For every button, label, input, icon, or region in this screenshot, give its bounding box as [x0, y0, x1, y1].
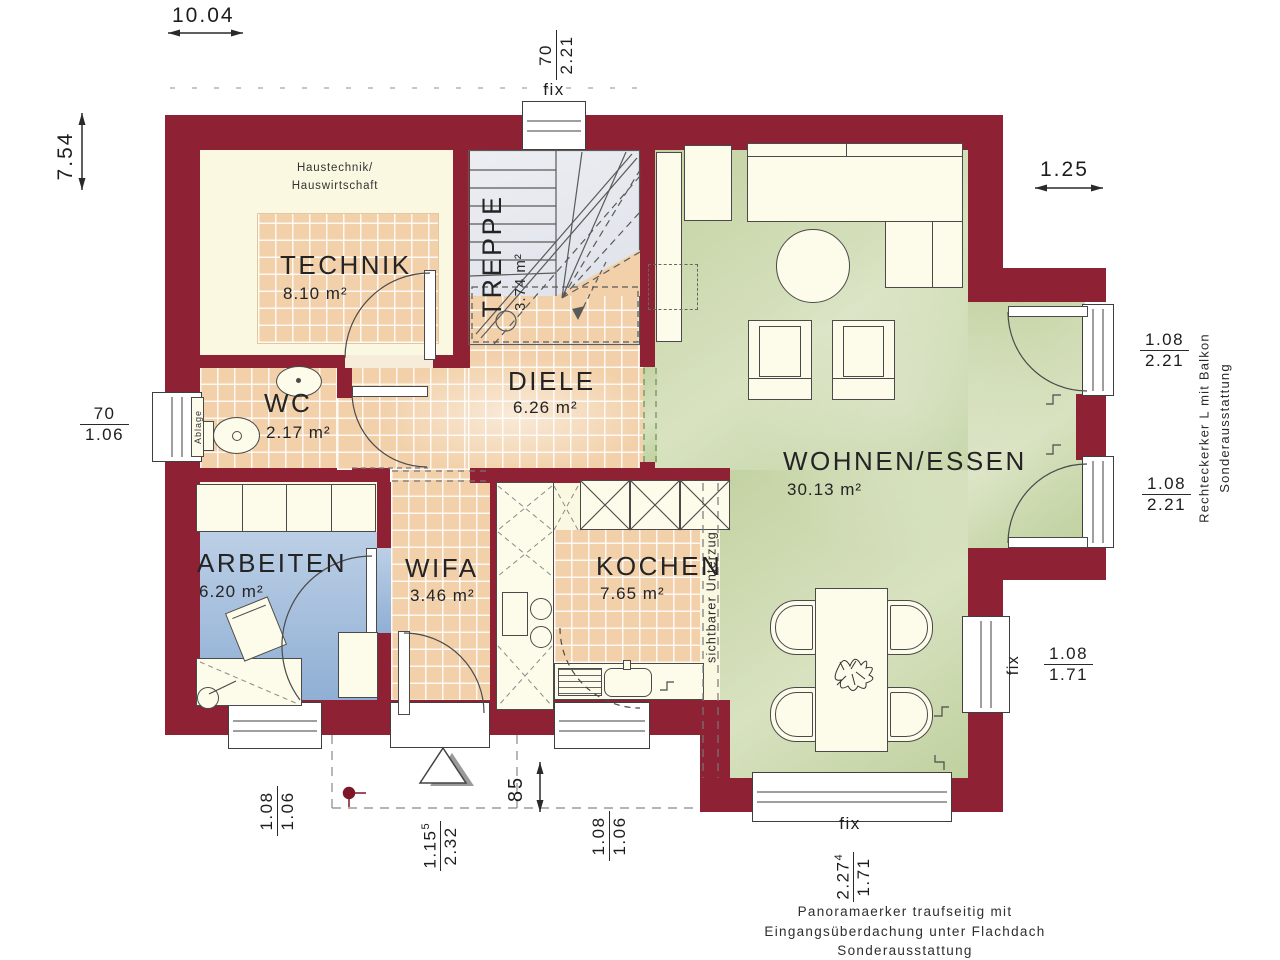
dim-num: 70	[89, 404, 121, 424]
wall-stairs-left	[453, 150, 470, 368]
dim-bay-door-upper: 1.08 2.21	[1140, 330, 1189, 370]
dim-overall-height: 7.54	[54, 116, 78, 196]
dim-window-top: 70 2.21	[534, 25, 578, 85]
sofa-chaise	[885, 221, 963, 288]
bay-note-line1: Rechteckerker L mit Balkon	[1196, 321, 1212, 536]
wardrobe-divider	[331, 485, 332, 531]
chair-line	[890, 692, 928, 737]
sideboard-tall	[656, 152, 682, 342]
dim-den: 2.21	[1140, 350, 1189, 371]
beam-label: sichtbarer Unterzug	[704, 510, 720, 685]
sideboard-short	[684, 145, 732, 221]
dim-window-right: 1.08 1.71	[1044, 644, 1093, 684]
arbeiten-cabinet	[338, 632, 378, 698]
dim-sup: 5	[420, 823, 432, 829]
chair-line	[775, 605, 813, 650]
dining-chair-bl	[770, 687, 818, 742]
dim-entry-door: 1.155 2.32	[418, 812, 462, 880]
kitchen-oven	[502, 592, 528, 636]
kitchen-burner-1	[530, 598, 552, 620]
wardrobe	[196, 484, 376, 532]
wc-toilet-drain	[232, 431, 242, 441]
dining-table	[815, 588, 888, 752]
downpipe-symbol	[344, 788, 367, 808]
dim-bay-door-lower: 1.08 2.21	[1142, 474, 1191, 514]
room-area-arbeiten: 6.20 m²	[199, 582, 264, 602]
panorama-note: Panoramaerker traufseitig mit Eingangsüb…	[690, 902, 1120, 960]
dim-erker-offset: 1.25	[1040, 158, 1089, 182]
entrance-marker	[420, 748, 474, 786]
dim-panorama-window: 2.274 1.71	[831, 843, 875, 911]
sofa-main	[747, 143, 963, 222]
wc-sink-drain	[296, 378, 301, 383]
dim-num: 1.08	[1140, 330, 1189, 350]
floor-plan: Haustechnik/ Hauswirtschaft TECHNIK 8.10…	[0, 0, 1280, 960]
dim-den: 2.32	[440, 821, 461, 870]
sofa-divider	[846, 144, 847, 156]
arbeiten-door-leaf	[366, 548, 377, 634]
door-glass	[1093, 461, 1104, 543]
wall-technik-bottom-a	[200, 355, 345, 368]
entry-door-leaf	[398, 631, 410, 715]
wall-arbeiten-wifa-top	[377, 482, 391, 548]
room-area-wohnen: 30.13 m²	[787, 480, 862, 500]
bay-floor	[968, 302, 1085, 548]
room-label-wohnen: WOHNEN/ESSEN	[783, 446, 1027, 477]
dim-num: 1.08	[257, 786, 277, 835]
technik-door-leaf	[424, 270, 436, 360]
panorama-note-line1: Panoramaerker traufseitig mit	[690, 902, 1120, 922]
dim-den: 2.21	[556, 30, 577, 79]
window-glass	[559, 720, 645, 731]
wc-door-leaf	[352, 386, 428, 397]
dining-chair-br	[885, 687, 933, 742]
dim-den: 1.71	[1044, 664, 1093, 685]
window-kitchen	[554, 702, 650, 749]
room-label-treppe: TREPPE	[470, 171, 514, 341]
room-area-wifa: 3.46 m²	[410, 586, 475, 606]
room-area-kochen: 7.65 m²	[600, 584, 665, 604]
wall-right-upper	[968, 115, 1003, 275]
technik-door-opening	[345, 355, 433, 368]
armchair-front	[833, 378, 894, 399]
desk-lamp	[197, 687, 219, 709]
wall-wohnen-bottom-left	[700, 735, 730, 812]
fix-label-bottom: fix	[800, 814, 900, 834]
bay-door-upper	[1082, 304, 1114, 396]
wall-wc-bottom	[165, 468, 390, 482]
window-fix-top	[522, 101, 586, 150]
dim-den: 1.06	[277, 786, 298, 835]
room-area-treppe: 3.74 m²	[510, 232, 530, 332]
coffee-table	[776, 229, 850, 303]
dim-den: 1.71	[853, 852, 874, 901]
room-area-wc: 2.17 m²	[266, 423, 331, 443]
wc-door-opening	[337, 398, 352, 470]
technik-note-line1: Haustechnik/	[255, 160, 415, 178]
armchair-front	[749, 378, 811, 399]
room-area-technik: 8.10 m²	[283, 284, 348, 304]
wall-bay-pillar	[1076, 394, 1106, 460]
wardrobe-divider	[242, 485, 243, 531]
dim-sup: 4	[833, 854, 845, 860]
kitchen-drainer	[558, 668, 602, 696]
room-label-technik: TECHNIK	[280, 250, 412, 281]
wall-wc-right-pillar	[337, 368, 352, 398]
diele-wohnen-passage	[643, 367, 657, 463]
kitchen-wall-cabinet-1	[580, 480, 630, 530]
dim-overall-width: 10.04	[172, 4, 235, 28]
dim-den: 1.06	[609, 811, 630, 860]
room-label-wc: WC	[264, 388, 312, 419]
wall-technik-bottom-b	[433, 355, 470, 368]
arbeiten-door-opening	[377, 548, 391, 633]
dim-num: 2.274	[833, 849, 853, 904]
kitchen-sink	[604, 668, 652, 697]
wall-stairs-right	[640, 150, 655, 367]
chair-line	[775, 692, 813, 737]
fix-label-right: fix	[1004, 645, 1024, 685]
window-glass	[233, 720, 317, 731]
dim-num: 1.08	[1142, 474, 1191, 494]
dim-window-kitchen: 1.08 1.06	[587, 806, 631, 866]
dim-den: 2.21	[1142, 494, 1191, 515]
wardrobe-divider	[286, 485, 287, 531]
wall-bay-bottom	[968, 548, 1106, 580]
sofa-back-line	[748, 156, 962, 157]
technik-note: Haustechnik/ Hauswirtschaft	[255, 160, 415, 196]
bay-door-lower	[1082, 456, 1114, 548]
dim-num: 1.155	[420, 818, 440, 873]
kitchen-burner-2	[530, 626, 552, 648]
technik-note-line2: Hauswirtschaft	[255, 178, 415, 196]
bay-door-lower-leaf	[1008, 537, 1088, 548]
room-label-arbeiten: ARBEITEN	[197, 548, 347, 579]
panorama-note-line2: Eingangsüberdachung unter Flachdach	[690, 922, 1120, 942]
wall-arbeiten-wifa-bottom	[377, 633, 391, 735]
diele-floor-left	[345, 368, 470, 470]
window-glass	[757, 792, 947, 803]
armchair-left	[748, 320, 812, 400]
dim-den: 1.06	[80, 424, 129, 445]
window-fix-right	[962, 616, 1010, 713]
planned-furniture-outline	[648, 264, 698, 310]
armchair-seat	[843, 326, 884, 377]
window-arbeiten	[228, 702, 322, 749]
dim-canopy-depth: 85	[505, 767, 527, 811]
dim-num: 70	[536, 39, 556, 71]
armchair-seat	[759, 326, 801, 377]
room-label-diele: DIELE	[508, 366, 596, 397]
room-area-diele: 6.26 m²	[513, 398, 578, 418]
chair-line	[890, 605, 928, 650]
armchair-right	[832, 320, 895, 400]
dim-num: 1.08	[1044, 644, 1093, 664]
dim-window-wc: 70 1.06	[80, 404, 129, 444]
panorama-note-line3: Sonderausstattung	[690, 941, 1120, 960]
kitchen-tap	[623, 660, 631, 670]
room-label-wifa: WIFA	[405, 553, 479, 584]
dining-chair-tr	[885, 600, 933, 655]
bay-note-line2: Sonderausstattung	[1216, 348, 1232, 508]
bay-door-upper-leaf	[1008, 306, 1088, 317]
window-glass	[527, 120, 581, 131]
dim-num: 1.08	[589, 811, 609, 860]
window-glass	[172, 397, 183, 457]
door-glass	[1093, 309, 1104, 391]
wall-bay-top	[968, 268, 1106, 302]
dining-chair-tl	[770, 600, 818, 655]
wc-shelf-label: Ablage	[192, 400, 204, 454]
chaise-line	[932, 222, 933, 287]
window-glass	[981, 621, 992, 708]
dim-window-arbeiten: 1.08 1.06	[255, 781, 299, 841]
kitchen-wall-cabinet-2	[630, 480, 680, 530]
